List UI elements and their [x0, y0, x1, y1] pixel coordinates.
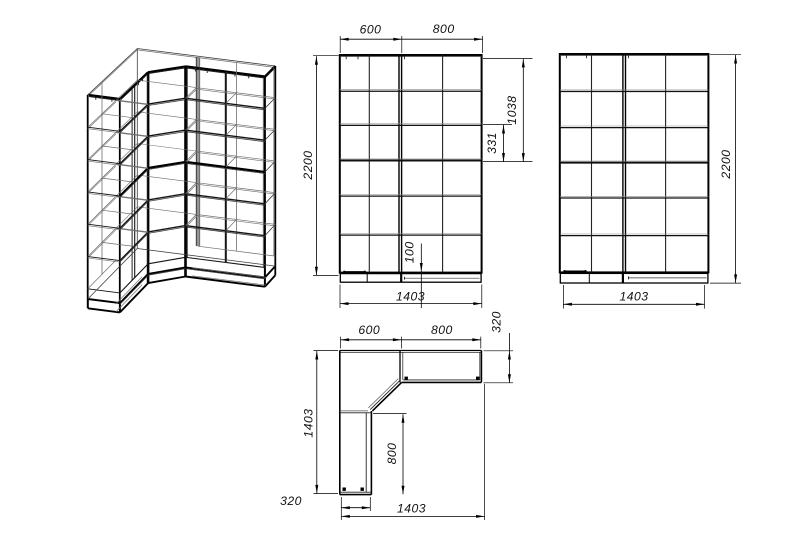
- svg-text:600: 600: [360, 23, 382, 37]
- svg-text:800: 800: [433, 22, 455, 36]
- svg-text:1403: 1403: [397, 501, 426, 515]
- svg-text:1403: 1403: [302, 408, 316, 437]
- svg-text:800: 800: [385, 443, 399, 465]
- svg-text:800: 800: [431, 323, 453, 337]
- svg-text:2200: 2200: [301, 150, 315, 180]
- svg-text:600: 600: [358, 323, 380, 337]
- svg-text:1038: 1038: [505, 95, 519, 124]
- svg-text:320: 320: [490, 311, 504, 333]
- svg-text:1403: 1403: [396, 289, 425, 303]
- svg-text:2200: 2200: [719, 149, 733, 179]
- svg-text:100: 100: [403, 241, 417, 263]
- svg-text:320: 320: [280, 494, 302, 508]
- svg-text:1403: 1403: [619, 289, 648, 303]
- svg-text:331: 331: [485, 132, 499, 154]
